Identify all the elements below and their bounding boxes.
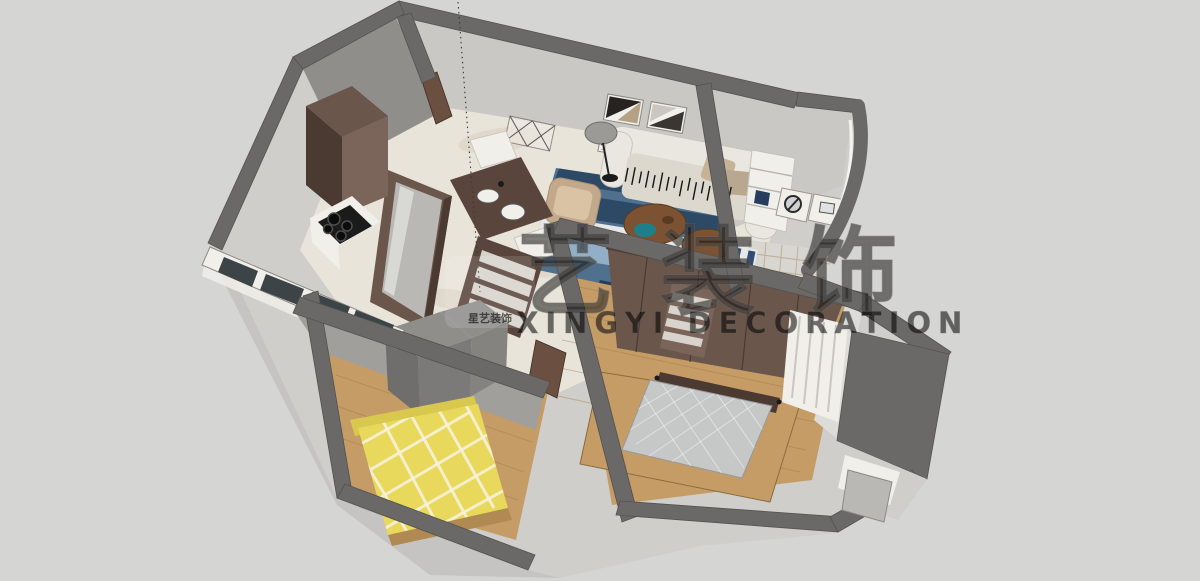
apartment-3d-floorplan: 星艺装饰 艺装饰 XINGYI DECORATION [0, 0, 1200, 581]
candlestick [498, 181, 504, 187]
floorplan-render-canvas: 星艺装饰 艺装饰 XINGYI DECORATION [0, 0, 1200, 581]
watermark-logo-label: 星艺装饰 [468, 311, 512, 325]
watermark-en-text: XINGYI DECORATION [516, 306, 969, 340]
watermark: 星艺装饰 艺装饰 XINGYI DECORATION [445, 217, 969, 340]
plate [477, 189, 499, 203]
